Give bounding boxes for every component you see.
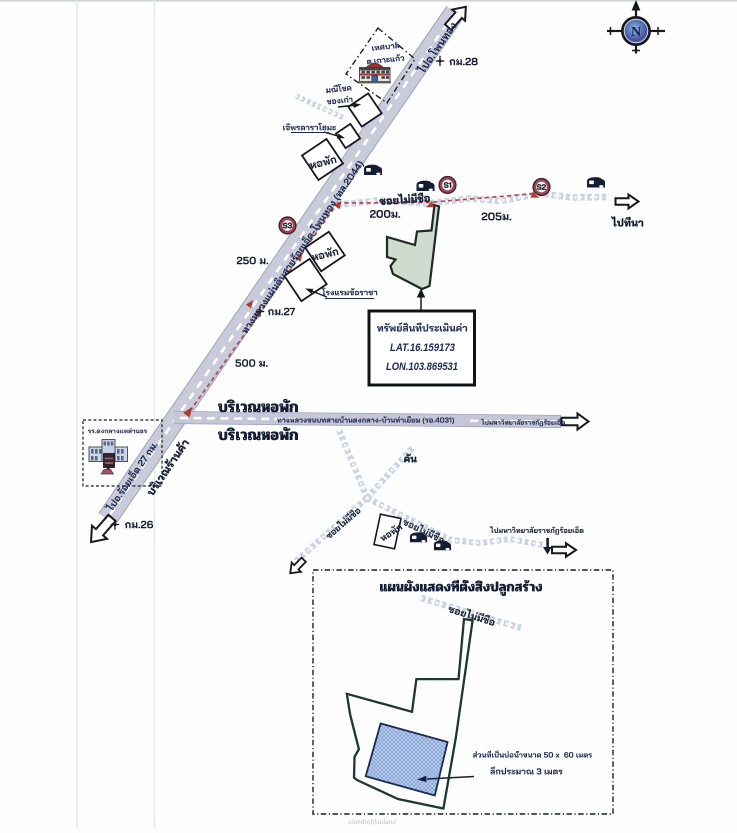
svg-text:N: N [631, 25, 641, 40]
svg-text:alandsofthailand: alandsofthailand [348, 818, 396, 826]
svg-text:LAT.16.159173: LAT.16.159173 [390, 342, 456, 354]
svg-text:LON.103.869531: LON.103.869531 [386, 361, 458, 373]
